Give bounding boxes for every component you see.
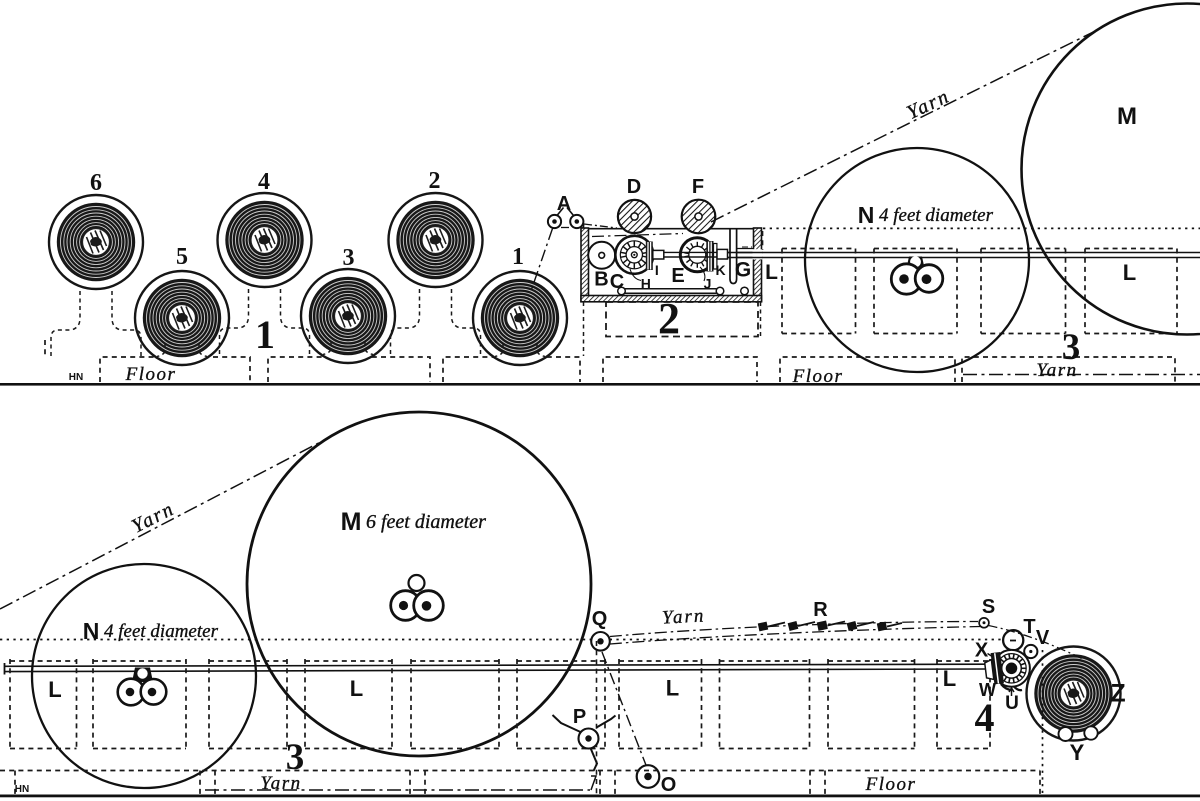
svg-text:Yarn: Yarn bbox=[662, 605, 706, 628]
svg-text:4: 4 bbox=[975, 695, 995, 740]
svg-text:L: L bbox=[666, 676, 679, 701]
svg-text:L: L bbox=[1123, 260, 1136, 285]
svg-text:1: 1 bbox=[512, 244, 524, 270]
svg-text:L: L bbox=[765, 261, 778, 284]
svg-text:V: V bbox=[1036, 627, 1050, 649]
svg-text:P: P bbox=[573, 706, 586, 728]
svg-text:5: 5 bbox=[176, 244, 188, 270]
svg-text:Floor: Floor bbox=[865, 774, 917, 795]
svg-text:M: M bbox=[341, 508, 362, 536]
svg-text:L: L bbox=[48, 677, 61, 702]
svg-text:T: T bbox=[1023, 616, 1035, 638]
svg-text:HN: HN bbox=[69, 372, 83, 383]
svg-text:F: F bbox=[692, 176, 704, 198]
svg-text:C: C bbox=[610, 271, 624, 293]
svg-text:2: 2 bbox=[429, 168, 441, 194]
svg-text:3: 3 bbox=[286, 737, 305, 778]
svg-text:I: I bbox=[655, 262, 659, 278]
svg-text:Yarn: Yarn bbox=[1036, 360, 1077, 381]
svg-text:4 feet diameter: 4 feet diameter bbox=[879, 205, 994, 226]
svg-text:Q: Q bbox=[592, 608, 608, 630]
svg-text:2: 2 bbox=[658, 294, 680, 343]
svg-text:Floor: Floor bbox=[125, 364, 177, 385]
svg-text:O: O bbox=[661, 774, 677, 796]
svg-text:L: L bbox=[943, 666, 956, 691]
svg-text:H: H bbox=[641, 276, 651, 292]
svg-text:U: U bbox=[1005, 693, 1019, 714]
svg-text:N: N bbox=[83, 618, 100, 644]
svg-text:N: N bbox=[858, 202, 875, 228]
svg-text:X: X bbox=[975, 640, 989, 662]
svg-text:6: 6 bbox=[90, 170, 102, 196]
svg-text:L: L bbox=[350, 676, 363, 701]
svg-text:HN: HN bbox=[15, 784, 29, 795]
svg-text:1: 1 bbox=[255, 312, 275, 357]
svg-text:Z: Z bbox=[1110, 680, 1125, 708]
svg-text:S: S bbox=[982, 596, 995, 618]
svg-text:A: A bbox=[557, 193, 571, 215]
svg-text:R: R bbox=[813, 599, 828, 621]
svg-text:6 feet diameter: 6 feet diameter bbox=[366, 511, 486, 533]
svg-text:Y: Y bbox=[1070, 740, 1085, 765]
svg-text:D: D bbox=[627, 176, 641, 198]
svg-text:4: 4 bbox=[258, 169, 270, 195]
svg-text:K: K bbox=[715, 262, 725, 278]
svg-text:E: E bbox=[671, 265, 684, 287]
svg-text:B: B bbox=[594, 269, 608, 291]
svg-text:G: G bbox=[735, 259, 751, 282]
svg-text:3: 3 bbox=[343, 245, 355, 271]
svg-text:M: M bbox=[1117, 103, 1137, 130]
svg-text:Yarn: Yarn bbox=[260, 773, 301, 794]
